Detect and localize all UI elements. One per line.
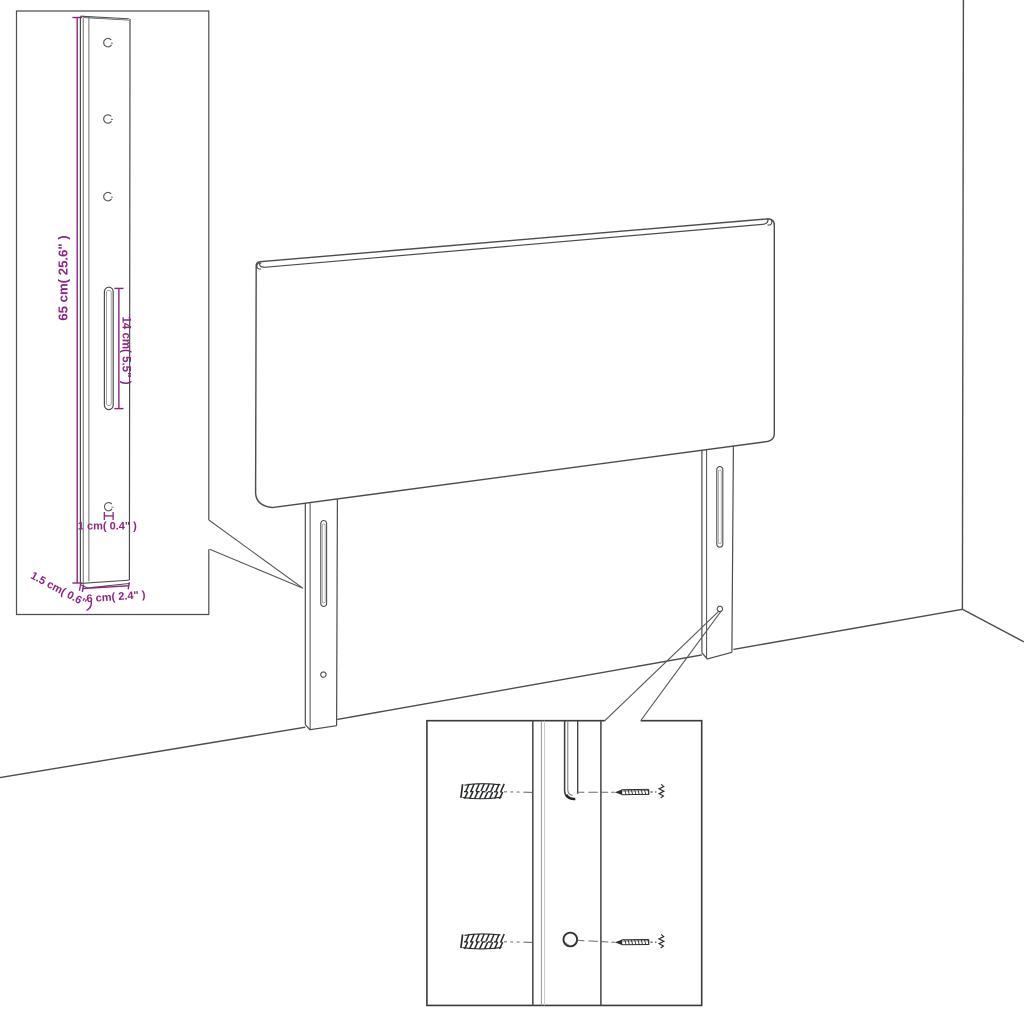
svg-text:1 cm( 0.4" ): 1 cm( 0.4" ) bbox=[78, 521, 137, 533]
svg-text:14 cm( 5.5" ): 14 cm( 5.5" ) bbox=[120, 316, 132, 384]
svg-text:1.5 cm( 0.6" ): 1.5 cm( 0.6" ) bbox=[28, 570, 94, 613]
svg-text:65 cm( 25.6" ): 65 cm( 25.6" ) bbox=[55, 235, 70, 320]
svg-text:6 cm( 2.4" ): 6 cm( 2.4" ) bbox=[86, 589, 146, 605]
